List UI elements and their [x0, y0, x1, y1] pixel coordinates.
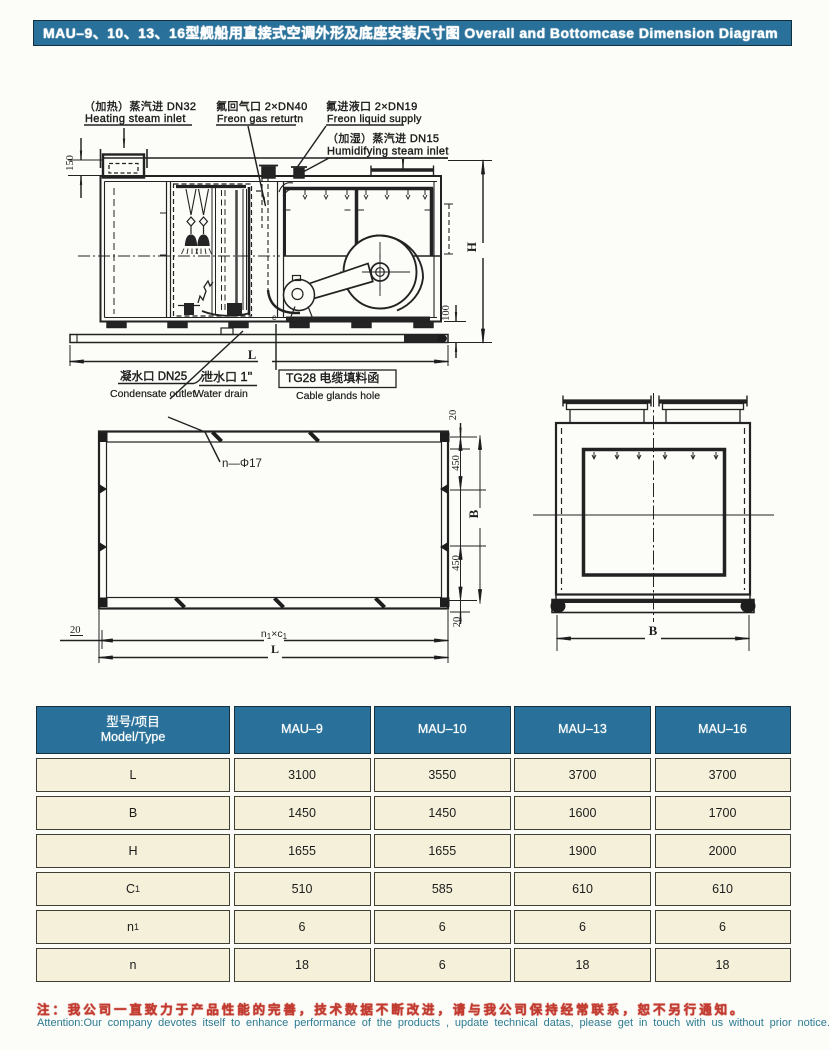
svg-text:150: 150: [65, 155, 76, 171]
svg-text:B: B: [466, 509, 481, 518]
svg-text:Condensate outlet: Condensate outlet: [110, 388, 195, 400]
svg-text:20: 20: [448, 410, 459, 421]
svg-text:n—Φ17: n—Φ17: [222, 458, 262, 470]
svg-text:H: H: [464, 242, 479, 252]
svg-text:Cable glands hole: Cable glands hole: [296, 390, 380, 402]
svg-text:Humidifying steam inlet: Humidifying steam inlet: [327, 146, 449, 158]
svg-text:L: L: [271, 642, 279, 656]
svg-text:氟回气口 2×DN40: 氟回气口 2×DN40: [216, 99, 308, 113]
svg-text:L: L: [248, 348, 256, 362]
svg-text:Heating steam inlet: Heating steam inlet: [85, 113, 186, 125]
svg-text:450: 450: [451, 555, 462, 571]
svg-text:20: 20: [452, 617, 463, 628]
svg-text:Water drain: Water drain: [194, 388, 248, 400]
svg-text:氟进液口 2×DN19: 氟进液口 2×DN19: [326, 99, 418, 113]
svg-text:450: 450: [451, 455, 462, 471]
svg-text:泄水口 1": 泄水口 1": [201, 369, 253, 384]
svg-text:（加热）蒸汽进 DN32: （加热）蒸汽进 DN32: [84, 99, 196, 113]
svg-text:100: 100: [441, 305, 452, 321]
svg-text:（加湿）蒸汽进 DN15: （加湿）蒸汽进 DN15: [327, 131, 439, 145]
svg-text:凝水口 DN25: 凝水口 DN25: [120, 369, 187, 383]
svg-text:20: 20: [70, 625, 81, 636]
svg-text:TG28 电缆填料函: TG28 电缆填料函: [286, 371, 379, 385]
svg-text:Freon gas returtn: Freon gas returtn: [217, 113, 304, 125]
svg-text:B: B: [649, 623, 658, 638]
svg-text:Freon liquid supply: Freon liquid supply: [327, 113, 422, 125]
svg-text:n1×c1: n1×c1: [261, 628, 288, 641]
